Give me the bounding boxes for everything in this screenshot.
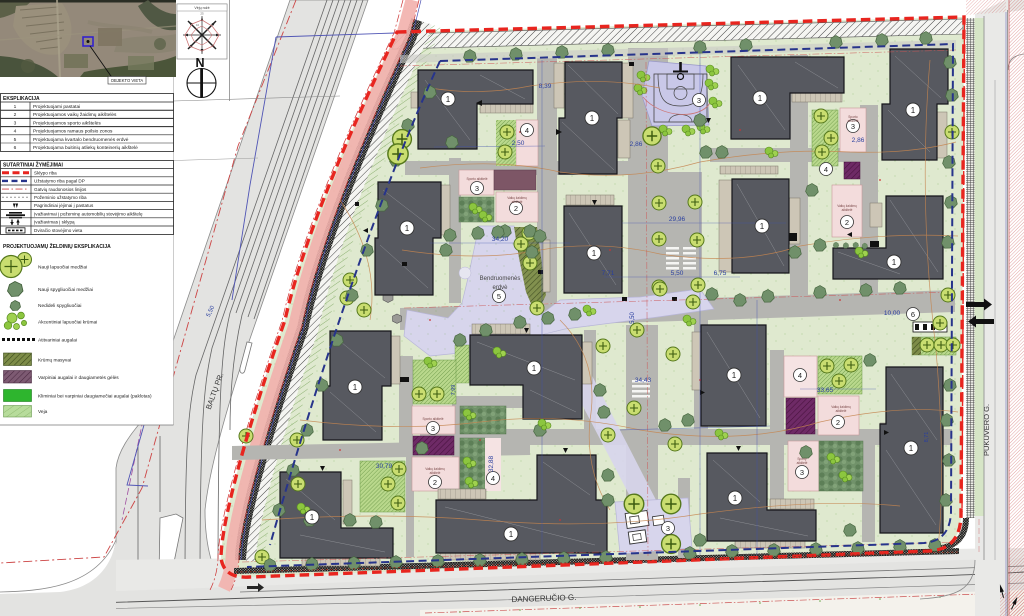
svg-text:6: 6: [14, 145, 17, 151]
svg-text:4: 4: [824, 165, 828, 174]
svg-text:EKSPLIKACIJA: EKSPLIKACIJA: [3, 96, 40, 102]
svg-text:2,50: 2,50: [512, 140, 525, 147]
svg-text:3: 3: [475, 184, 479, 193]
svg-text:8,71: 8,71: [924, 432, 930, 443]
svg-text:Projektuojama buitinių atliekų: Projektuojama buitinių atliekų konteiner…: [33, 145, 138, 151]
svg-text:PROJEKTUOJAMŲ ŽELDINIŲ EKSPLIK: PROJEKTUOJAMŲ ŽELDINIŲ EKSPLIKACIJA: [3, 242, 111, 250]
svg-text:2,86: 2,86: [852, 137, 865, 144]
svg-text:Sporto aikštelė: Sporto aikštelė: [466, 177, 487, 181]
svg-text:33,65: 33,65: [817, 387, 834, 394]
svg-text:aikštelė: aikštelė: [512, 200, 523, 204]
svg-text:Atitvariniai augalai: Atitvariniai augalai: [38, 338, 77, 344]
svg-text:1: 1: [592, 249, 597, 258]
svg-text:7,71: 7,71: [602, 270, 615, 277]
svg-text:Kliminiai bei varpiniai daugia: Kliminiai bei varpiniai daugiamečiai aug…: [38, 394, 152, 400]
svg-text:1: 1: [909, 444, 914, 453]
svg-text:1: 1: [760, 222, 765, 231]
svg-text:aikštelė: aikštelė: [836, 409, 847, 413]
svg-text:2: 2: [845, 218, 849, 227]
svg-text:2: 2: [14, 112, 17, 118]
svg-text:1: 1: [590, 114, 595, 123]
svg-text:30,79: 30,79: [376, 463, 393, 470]
svg-text:N: N: [195, 56, 204, 70]
svg-text:Įvažiavimai į požeminę automob: Įvažiavimai į požeminę automobilių stovė…: [34, 211, 143, 216]
svg-text:2,86: 2,86: [630, 141, 643, 148]
svg-text:34,43: 34,43: [635, 377, 652, 384]
svg-text:4: 4: [14, 129, 17, 135]
svg-text:Bendruomenės: Bendruomenės: [480, 276, 521, 282]
svg-text:10,00: 10,00: [884, 310, 901, 317]
svg-text:erdvė: erdvė: [492, 285, 508, 291]
svg-text:1: 1: [911, 106, 916, 115]
svg-text:Sporto aikštelė: Sporto aikštelė: [422, 417, 443, 421]
svg-text:1: 1: [758, 94, 763, 103]
svg-text:3: 3: [851, 122, 855, 131]
svg-text:1: 1: [446, 95, 451, 104]
svg-text:PUKUVERO G.: PUKUVERO G.: [982, 404, 991, 456]
svg-text:Požeminio užstatymo riba: Požeminio užstatymo riba: [34, 195, 87, 200]
svg-text:34,20: 34,20: [492, 236, 509, 243]
svg-text:7,99: 7,99: [451, 385, 457, 396]
svg-text:1: 1: [733, 494, 738, 503]
svg-text:aikštelė: aikštelė: [430, 471, 441, 475]
svg-text:Krūmų masyvai: Krūmų masyvai: [38, 358, 71, 364]
svg-text:Sklypo riba: Sklypo riba: [34, 170, 57, 175]
svg-text:6: 6: [911, 310, 915, 319]
svg-text:3: 3: [800, 468, 804, 477]
svg-text:32,88: 32,88: [488, 455, 495, 472]
svg-text:Vėjų rožė: Vėjų rožė: [194, 6, 209, 10]
svg-text:1: 1: [310, 513, 315, 522]
svg-text:3: 3: [14, 120, 17, 126]
svg-text:25: 25: [200, 12, 204, 16]
svg-text:5,50: 5,50: [630, 312, 636, 324]
svg-text:3: 3: [697, 96, 701, 105]
svg-text:aikštelė: aikštelė: [797, 461, 808, 465]
svg-text:6,75: 6,75: [714, 270, 727, 277]
svg-text:Pagrindiniai įėjimai į pastatu: Pagrindiniai įėjimai į pastatus: [34, 203, 94, 208]
svg-text:1: 1: [732, 371, 737, 380]
svg-text:Nedideli spygliuočiai: Nedideli spygliuočiai: [38, 303, 81, 309]
svg-text:Įvažiavimas į sklypą: Įvažiavimas į sklypą: [34, 220, 75, 225]
svg-text:1: 1: [532, 364, 537, 373]
svg-text:1: 1: [405, 224, 410, 233]
svg-text:Projektuojamos vaikų žaidimų a: Projektuojamos vaikų žaidimų aikštelės: [33, 112, 117, 118]
svg-text:4: 4: [491, 474, 495, 483]
svg-text:4: 4: [798, 371, 802, 380]
svg-text:1: 1: [353, 383, 358, 392]
svg-text:29,96: 29,96: [669, 216, 686, 223]
svg-text:Projektuojamos ramaus poilsio: Projektuojamos ramaus poilsio zonos: [33, 129, 113, 135]
svg-text:3: 3: [666, 524, 670, 533]
svg-text:Veja: Veja: [38, 409, 48, 415]
svg-text:5,50: 5,50: [671, 270, 684, 277]
svg-text:aikštelė: aikštelė: [842, 208, 853, 212]
svg-text:3: 3: [431, 424, 435, 433]
svg-text:Nauji spygliuočiai medžiai: Nauji spygliuočiai medžiai: [38, 287, 93, 293]
svg-text:Projektuojama kvartalo bendruo: Projektuojama kvartalo bendruomenės erdv…: [33, 137, 129, 143]
svg-text:Akcentiniai lapuočiai krūmai: Akcentiniai lapuočiai krūmai: [38, 320, 97, 326]
svg-text:10: 10: [196, 23, 200, 27]
svg-text:5: 5: [497, 292, 501, 301]
svg-text:1: 1: [14, 104, 17, 110]
svg-text:Varpiniai augalai ir daugiamet: Varpiniai augalai ir daugiametės gėlės: [38, 375, 119, 381]
svg-text:2: 2: [836, 418, 840, 427]
svg-text:Nauji lapuočiai medžiai: Nauji lapuočiai medžiai: [38, 265, 87, 271]
svg-text:2: 2: [514, 204, 518, 213]
svg-text:2: 2: [433, 478, 437, 487]
svg-text:1: 1: [509, 530, 514, 539]
svg-text:Dviračio stovėjimo vieta: Dviračio stovėjimo vieta: [34, 228, 83, 233]
svg-text:SUTARTINIAI ŽYMĖJIMAI: SUTARTINIAI ŽYMĖJIMAI: [3, 161, 64, 169]
svg-text:8,39: 8,39: [539, 83, 552, 90]
svg-text:aikštelė: aikštelė: [848, 119, 859, 123]
svg-text:Užstatymo riba pagal DP: Užstatymo riba pagal DP: [34, 179, 85, 184]
svg-text:4: 4: [525, 126, 529, 135]
svg-text:Gatvių raudonosios linijos: Gatvių raudonosios linijos: [34, 187, 87, 192]
svg-text:Projektuojamos sporto aikštelė: Projektuojamos sporto aikštelės: [33, 120, 101, 126]
svg-text:Projektuojami pastatai: Projektuojami pastatai: [33, 104, 80, 110]
svg-text:5: 5: [14, 137, 17, 143]
svg-text:1: 1: [892, 258, 897, 267]
svg-text:OBJEKTO VIETA: OBJEKTO VIETA: [111, 78, 144, 83]
